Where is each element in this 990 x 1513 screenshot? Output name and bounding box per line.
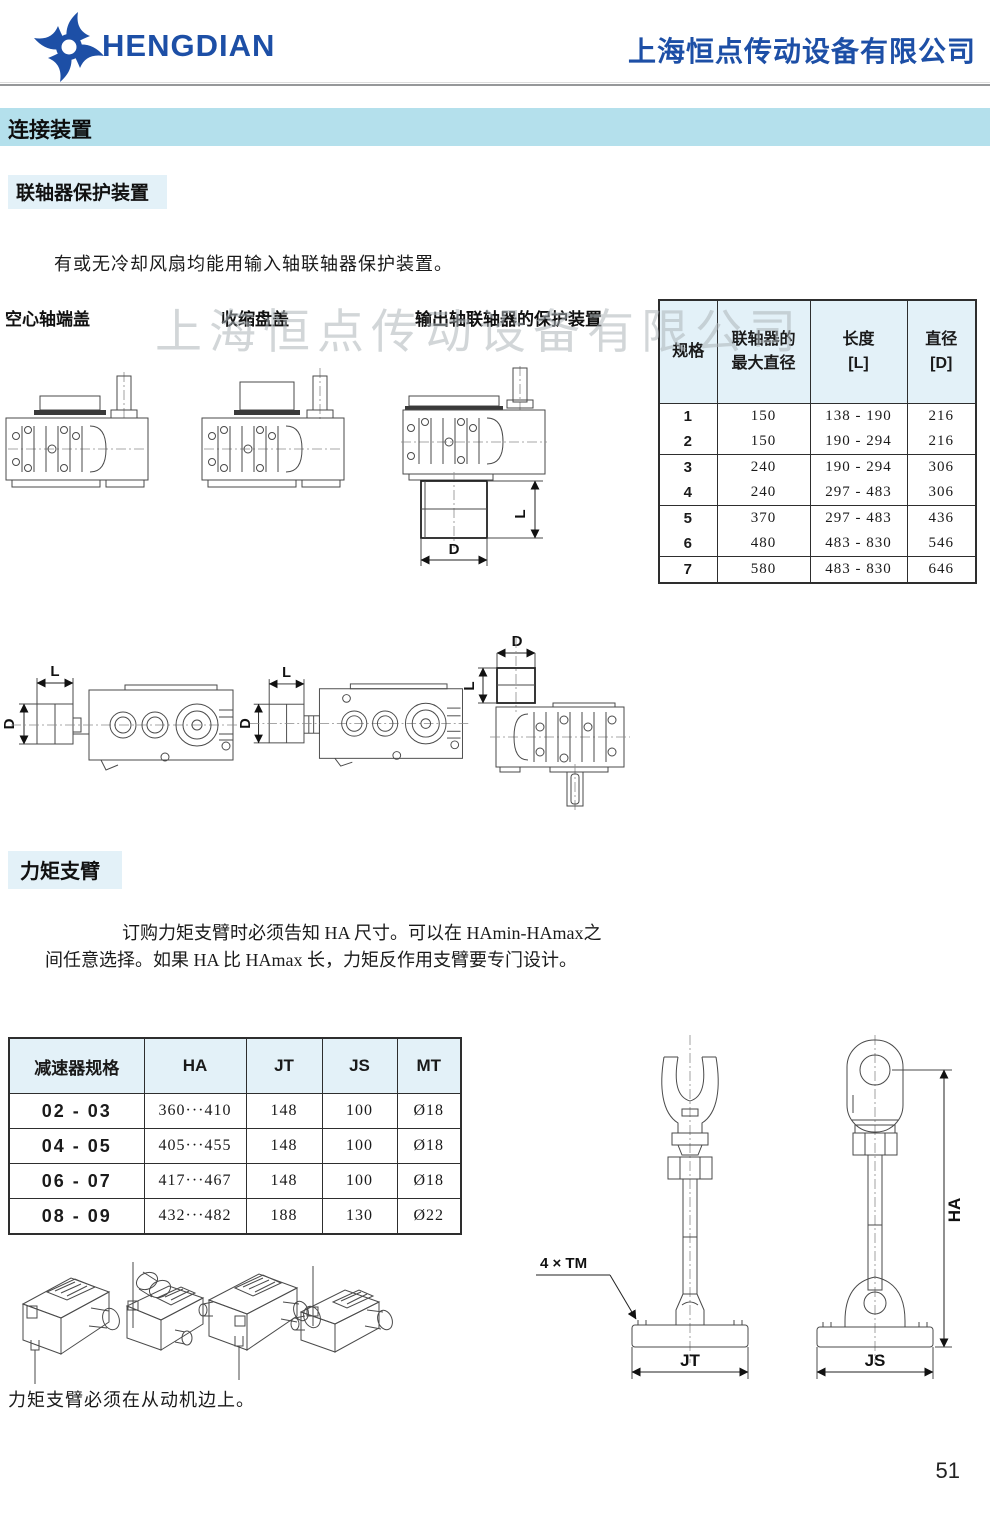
caption-shrink-disk-cover: 收缩盘盖 (221, 305, 289, 330)
cell: 190 - 294 (810, 455, 907, 481)
dim-label-L: L (50, 663, 59, 680)
caption-output-coupling-guard: 输出轴联轴器的保护装置 (415, 305, 602, 330)
hengdian-logo-icon (36, 10, 102, 84)
cell: 06 - 07 (9, 1164, 144, 1199)
cell: 150 (717, 429, 810, 455)
cell: 100 (322, 1164, 397, 1199)
table-row: 08 - 09 432···482 188 130 Ø22 (9, 1199, 461, 1235)
company-name: 上海恒点传动设备有限公司 (628, 30, 976, 70)
cell: HA (144, 1038, 246, 1094)
dim-label-JS: JS (865, 1351, 886, 1370)
cell: 规格 (659, 300, 717, 404)
cell: 减速器规格 (9, 1038, 144, 1094)
cell: 130 (322, 1199, 397, 1235)
dim-label-L: L (512, 509, 529, 518)
cell: 436 (907, 506, 976, 532)
fig-guard-mounted-center: L D (246, 638, 476, 783)
table-row: 06 - 07 417···467 148 100 Ø18 (9, 1164, 461, 1199)
cell: 148 (246, 1129, 322, 1164)
cell: Ø18 (397, 1129, 461, 1164)
torque-intro-line2: 间任意选择。如果 HA 比 HAmax 长，力矩反作用支臂要专门设计。 (45, 946, 577, 972)
cell: 370 (717, 506, 810, 532)
coupling-guard-table: 规格 联轴器的 最大直径 长度 [L] 直径 [D] 1 150 138 - 1… (658, 299, 977, 584)
cell: 5 (659, 506, 717, 532)
cell: 148 (246, 1164, 322, 1199)
coupling-intro-text: 有或无冷却风扇均能用输入轴联轴器保护装置。 (54, 250, 453, 276)
cell: 306 (907, 480, 976, 506)
cell: 02 - 03 (9, 1094, 144, 1129)
fig-output-coupling-guard: L D (395, 366, 615, 581)
cell: 6 (659, 531, 717, 557)
fig-shrink-disk-cover (198, 368, 358, 504)
cell: 4 (659, 480, 717, 506)
cell: 148 (246, 1094, 322, 1129)
fig-torque-arm-orientations (5, 1258, 375, 1383)
page-number: 51 (936, 1458, 960, 1484)
header-divider (0, 84, 990, 86)
dim-label-D: D (512, 633, 523, 650)
cell: 480 (717, 531, 810, 557)
cell: 483 - 830 (810, 557, 907, 584)
cell: 100 (322, 1129, 397, 1164)
cell: 483 - 830 (810, 531, 907, 557)
dim-label-D: D (449, 541, 460, 558)
cell: 100 (322, 1094, 397, 1129)
dim-label-L: L (461, 681, 478, 690)
cell: Ø18 (397, 1164, 461, 1199)
cell: JS (322, 1038, 397, 1094)
cell: 2 (659, 429, 717, 455)
cell: 190 - 294 (810, 429, 907, 455)
table-row: 7 580 483 - 830 646 (659, 557, 976, 584)
cell: 1 (659, 404, 717, 430)
brand-name: HENGDIAN (102, 28, 275, 64)
cell: 04 - 05 (9, 1129, 144, 1164)
dim-label-D: D (1, 718, 18, 729)
cell: 150 (717, 404, 810, 430)
dim-label-4xTM: 4 × TM (540, 1255, 587, 1272)
fig-torque-arm-dimensions: 4 × TM JT JS (480, 1025, 985, 1425)
fig-guard-mounted-left: L D (5, 638, 240, 783)
cell: 580 (717, 557, 810, 584)
cell: 417···467 (144, 1164, 246, 1199)
cell: 240 (717, 480, 810, 506)
table-row: 04 - 05 405···455 148 100 Ø18 (9, 1129, 461, 1164)
cell: 405···455 (144, 1129, 246, 1164)
fig-guard-mounted-right: D L (470, 632, 660, 810)
cell: 432···482 (144, 1199, 246, 1235)
cell: 297 - 483 (810, 506, 907, 532)
cell: 240 (717, 455, 810, 481)
cell: Ø22 (397, 1199, 461, 1235)
table-row: 6 480 483 - 830 546 (659, 531, 976, 557)
dim-label-L: L (282, 665, 291, 681)
cell: 138 - 190 (810, 404, 907, 430)
section-band-title: 连接装置 (8, 114, 92, 144)
subsection-torque-arm-title: 力矩支臂 (8, 851, 122, 889)
table-row: 4 240 297 - 483 306 (659, 480, 976, 506)
cell: 08 - 09 (9, 1199, 144, 1235)
torque-arm-note: 力矩支臂必须在从动机边上。 (8, 1386, 255, 1412)
cell: 长度 [L] (810, 300, 907, 404)
caption-hollow-shaft-end-cover: 空心轴端盖 (5, 305, 90, 330)
cell: 306 (907, 455, 976, 481)
cell: 联轴器的 最大直径 (717, 300, 810, 404)
cell: 188 (246, 1199, 322, 1235)
cell: 297 - 483 (810, 480, 907, 506)
cell: MT (397, 1038, 461, 1094)
table-row: 2 150 190 - 294 216 (659, 429, 976, 455)
table-row: 1 150 138 - 190 216 (659, 404, 976, 430)
cell: 216 (907, 429, 976, 455)
cell: 直径 [D] (907, 300, 976, 404)
table-header-row: 减速器规格 HA JT JS MT (9, 1038, 461, 1094)
header-divider-light (0, 82, 990, 83)
table-row: 02 - 03 360···410 148 100 Ø18 (9, 1094, 461, 1129)
cell: Ø18 (397, 1094, 461, 1129)
cell: 3 (659, 455, 717, 481)
cell: 360···410 (144, 1094, 246, 1129)
fig-hollow-shaft-end-cover (2, 372, 162, 504)
cell: 216 (907, 404, 976, 430)
dim-label-HA: HA (945, 1198, 964, 1223)
dim-label-JT: JT (680, 1351, 700, 1370)
torque-arm-table: 减速器规格 HA JT JS MT 02 - 03 360···410 148 … (8, 1037, 462, 1235)
catalog-page: HENGDIAN 上海恒点传动设备有限公司 连接装置 联轴器保护装置 有或无冷却… (0, 0, 990, 1513)
cell: 546 (907, 531, 976, 557)
table-row: 5 370 297 - 483 436 (659, 506, 976, 532)
cell: 646 (907, 557, 976, 584)
section-band-connection-devices: 连接装置 (0, 108, 990, 146)
table-row: 3 240 190 - 294 306 (659, 455, 976, 481)
cell: 7 (659, 557, 717, 584)
cell: JT (246, 1038, 322, 1094)
torque-intro-line1: 订购力矩支臂时必须告知 HA 尺寸。可以在 HAmin-HAmax之 (122, 919, 602, 945)
subsection-coupling-guard-title: 联轴器保护装置 (8, 175, 167, 209)
table-header-row: 规格 联轴器的 最大直径 长度 [L] 直径 [D] (659, 300, 976, 404)
